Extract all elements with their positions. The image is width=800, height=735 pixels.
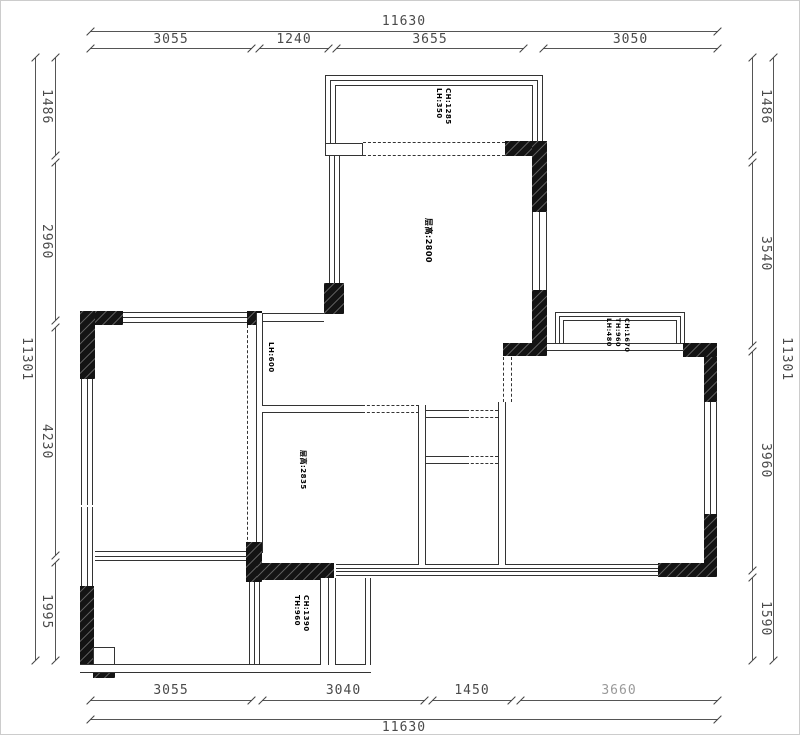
- label-line: TH:960: [613, 318, 622, 352]
- wall-line: [498, 402, 506, 565]
- room-label-opening: LH:600: [266, 342, 275, 373]
- dimension-line: [543, 48, 718, 49]
- dim-label: 1450: [432, 684, 512, 698]
- wall-notch: [325, 143, 363, 156]
- dimension-line: [773, 58, 774, 660]
- wall-line: [426, 410, 466, 418]
- wall-line: [80, 664, 371, 673]
- window: [81, 507, 93, 553]
- label-line: 层高:2835: [298, 450, 307, 490]
- door-opening-dashed: [466, 456, 498, 464]
- wall-line: [262, 405, 363, 413]
- label-line: CH:1285: [443, 88, 452, 125]
- dim-label: 1486: [38, 58, 53, 155]
- dimension-line: [432, 700, 512, 701]
- wall-line: [256, 313, 263, 553]
- dimension-line: [752, 352, 753, 570]
- dim-label: 3055: [90, 684, 252, 698]
- dim-label-left-overall: 11301: [18, 58, 33, 660]
- dim-label: 1240: [259, 33, 329, 47]
- dimension-line: [752, 58, 753, 155]
- dim-tick: [748, 158, 756, 166]
- dim-label-right-overall: 11301: [778, 58, 793, 660]
- floor-plan-canvas: 11630 3055 1240 3655 3050 3055 3040 1450…: [0, 0, 800, 735]
- room-label-top-balcony: CH:1285 LH:350: [434, 88, 452, 125]
- room-label-middle-room: 层高:2835: [298, 450, 307, 490]
- dimension-line: [90, 700, 252, 701]
- dimension-line: [336, 48, 524, 49]
- dim-label: 3050: [543, 33, 718, 47]
- window: [123, 312, 247, 323]
- dim-label: 1486: [757, 58, 772, 155]
- dim-label: 3960: [757, 352, 772, 570]
- dimension-line: [55, 163, 56, 320]
- label-line: 层高:2800: [424, 218, 433, 263]
- dimension-line: [55, 328, 56, 555]
- label-line: CH:1670: [622, 318, 631, 352]
- window: [95, 551, 246, 561]
- label-line: LH:600: [266, 342, 275, 373]
- dimension-line: [259, 48, 329, 49]
- room-label-bay-window: CH:1670 TH:960 LH:480: [604, 318, 631, 352]
- window: [249, 582, 260, 664]
- window: [704, 402, 717, 514]
- wall-segment: [80, 311, 95, 379]
- room-label-living: 层高:2800: [424, 218, 433, 263]
- wall-segment: [532, 290, 547, 346]
- opening-dashed-line: [247, 325, 248, 555]
- dim-tick: [748, 53, 756, 61]
- dim-label: 1590: [757, 578, 772, 660]
- dimension-line: [262, 700, 425, 701]
- dim-label-bottom-overall: 11630: [90, 721, 718, 735]
- window: [329, 156, 340, 285]
- wall-line: [365, 578, 371, 665]
- dimension-line: [90, 48, 252, 49]
- wall-line: [418, 405, 426, 565]
- window: [532, 212, 547, 290]
- wall-segment: [324, 283, 344, 314]
- window: [336, 564, 659, 576]
- dimension-line: [752, 578, 753, 660]
- door-opening-dashed: [362, 405, 419, 413]
- dim-label: 1995: [38, 563, 53, 660]
- label-line: LH:350: [434, 88, 443, 125]
- dim-label: 3540: [757, 163, 772, 345]
- window: [81, 553, 93, 586]
- door-opening-dashed: [466, 410, 498, 418]
- wall-line: [262, 313, 324, 322]
- dim-tick: [748, 573, 756, 581]
- dimension-line: [520, 700, 718, 701]
- label-line: CH:1390: [301, 595, 310, 632]
- room-label-bottom-balcony: CH:1390 TH:960: [292, 595, 310, 632]
- dim-label: 3040: [262, 684, 425, 698]
- wall-line: [426, 456, 466, 464]
- dim-label: 3655: [336, 33, 524, 47]
- dim-label: 2960: [38, 163, 53, 320]
- dimension-line: [752, 163, 753, 345]
- dimension-line: [55, 58, 56, 155]
- dim-label: 3055: [90, 33, 252, 47]
- dimension-line: [35, 58, 36, 660]
- wall-segment: [503, 343, 547, 356]
- dim-label: 3660: [520, 684, 718, 698]
- dim-label: 4230: [38, 328, 53, 555]
- window: [81, 379, 93, 505]
- wall-segment: [532, 141, 547, 212]
- label-line: TH:960: [292, 595, 301, 632]
- label-line: LH:480: [604, 318, 613, 352]
- wall-segment: [80, 586, 94, 668]
- door-opening-dashed: [503, 357, 512, 402]
- window: [320, 578, 336, 665]
- door-opening-dashed: [363, 142, 505, 156]
- dim-label-top-overall: 11630: [90, 15, 718, 29]
- wall-segment: [704, 514, 717, 567]
- dim-tick: [748, 656, 756, 664]
- dimension-line: [55, 563, 56, 660]
- wall-segment: [683, 343, 717, 357]
